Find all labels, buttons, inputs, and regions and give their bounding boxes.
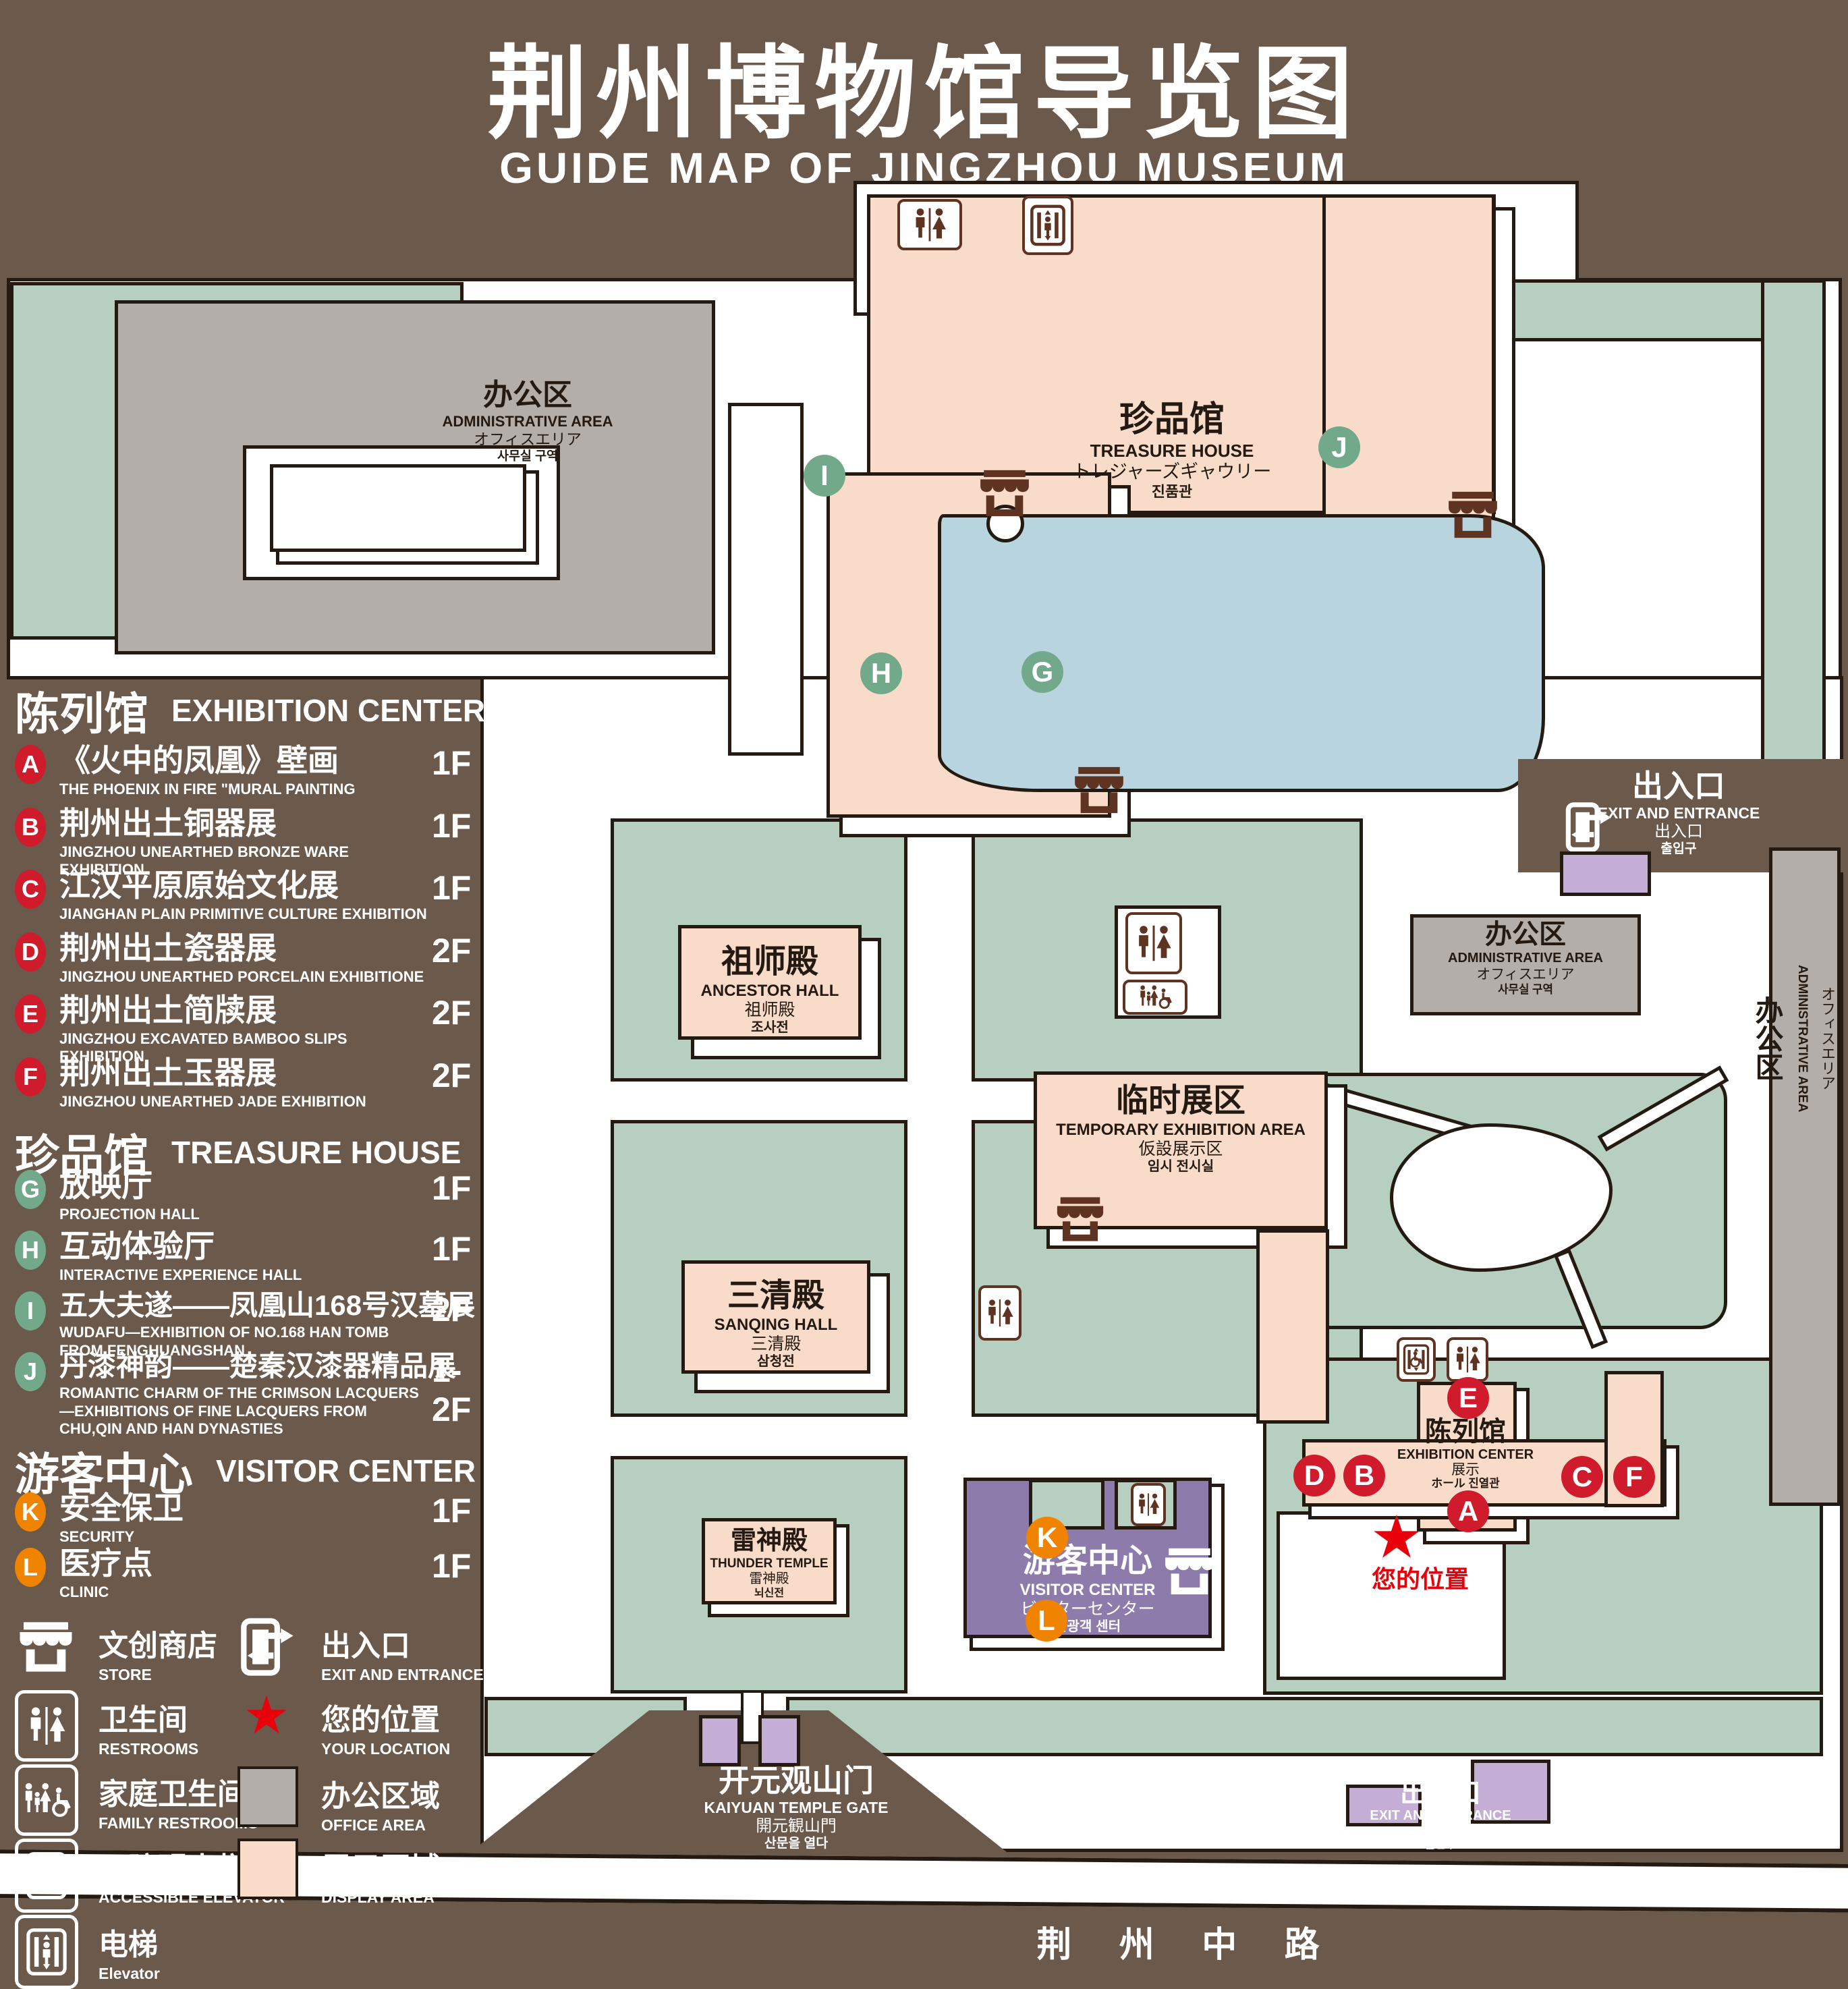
legend-item-floor: 1-2F <box>432 1351 487 1429</box>
legend-symbol-elevator: 电梯 Elevator <box>15 1915 160 1983</box>
legend-symbol-en: DISPLAY AREA <box>321 1888 440 1907</box>
label-en: TEMPORARY EXHIBITION AREA <box>1056 1121 1306 1140</box>
label-exit-south: 出入口 EXIT AND ENTRANCE 出入口 출입구 <box>1370 1778 1511 1851</box>
legend-item-zh: 互动体验厅 <box>59 1229 427 1264</box>
legend-item-zh: 丹漆神韵——楚秦汉漆器精品展 <box>59 1351 427 1382</box>
legend-item-zh: 医疗点 <box>59 1546 427 1581</box>
building-admin-east <box>1769 847 1841 1506</box>
legend-item-en: THE PHOENIX IN FIRE "MURAL PAINTING <box>59 781 427 798</box>
marker-badge-E: E <box>15 994 46 1034</box>
legend-symbol-restrooms: 卫生间 RESTROOMS <box>15 1690 198 1758</box>
legend-item-floor: 1F <box>432 744 471 783</box>
label-jp: 祖师殿 <box>701 1001 839 1020</box>
label-exhibition-center: 陈列馆 EXHIBITION CENTER 展示 ホール 진열관 <box>1397 1417 1534 1490</box>
legend-section-zh: 陈列馆 <box>15 689 148 739</box>
label-kaiyuan-gate: 开元观山门 KAIYUAN TEMPLE GATE 開元観山門 산문을 열다 <box>704 1762 888 1851</box>
legend-item-zh: 荆州出土玉器展 <box>59 1056 427 1090</box>
legend-symbol-en: EXIT AND ENTRANCE <box>321 1666 484 1684</box>
label-zh: 雷神殿 <box>710 1526 828 1557</box>
marker-badge-K: K <box>15 1492 46 1532</box>
marker-badge-L: L <box>15 1548 46 1587</box>
legend-item-J: J 丹漆神韵——楚秦汉漆器精品展 ROMANTIC CHARM OF THE C… <box>15 1351 487 1438</box>
label-zh: 办公区 <box>1747 996 1788 1081</box>
office-swatch <box>237 1766 298 1827</box>
marker-badge-C: C <box>15 870 46 909</box>
label-en: TREASURE HOUSE <box>1073 441 1272 461</box>
label-zh: 陈列馆 <box>1397 1417 1534 1447</box>
legend-symbol-en: FAMILY RESTROOMS <box>99 1814 258 1832</box>
map-marker-K: K <box>1026 1517 1068 1559</box>
legend-item-A: A 《火中的凤凰》壁画 THE PHOENIX IN FIRE "MURAL P… <box>15 744 487 798</box>
legend-symbol-zh: 出入口 <box>321 1621 484 1664</box>
legend-section-exhibition-center: 陈列馆EXHIBITION CENTER <box>15 678 485 743</box>
legend-item-floor: 1F <box>432 868 471 907</box>
label-kr: 뇌신전 <box>710 1588 828 1600</box>
page-title: 荆州博物馆导览图 <box>0 12 1848 159</box>
legend-item-C: C 江汉平原原始文化展 JIANGHAN PLAIN PRIMITIVE CUL… <box>15 868 487 923</box>
label-kr: 삼청전 <box>715 1354 838 1370</box>
legend-symbol-office-area: 办公区域 OFFICE AREA <box>237 1766 440 1834</box>
legend-item-floor: 1F <box>432 1491 471 1530</box>
label-jp: 出入口 <box>1370 1823 1511 1839</box>
exit-icon <box>237 1616 300 1678</box>
legend-item-zh: 《火中的凤凰》壁画 <box>59 744 427 778</box>
store-icon <box>1054 1193 1107 1245</box>
legend-item-floor: 1F <box>432 1229 471 1268</box>
label-zh: 办公区 <box>443 378 613 413</box>
legend-item-en: PROJECTION HALL <box>59 1206 427 1223</box>
legend-item-en: INTERACTIVE EXPERIENCE HALL <box>59 1266 427 1284</box>
label-jp: 三清殿 <box>715 1335 838 1354</box>
legend-item-en: SECURITY <box>59 1528 427 1546</box>
gate-post <box>758 1715 800 1766</box>
label-zh: 珍品馆 <box>1073 399 1272 441</box>
marker-badge-F: F <box>15 1057 46 1096</box>
label-en: EXIT AND ENTRANCE <box>1370 1808 1511 1823</box>
legend-item-D: D 荆州出土瓷器展 JINGZHOU UNEARTHED PORCELAIN E… <box>15 931 487 986</box>
label-temporary-exhibition: 临时展区 TEMPORARY EXHIBITION AREA 仮設展示区 임시 … <box>1056 1082 1306 1175</box>
legend-item-en: JINGZHOU UNEARTHED JADE EXHIBITION <box>59 1093 427 1111</box>
store-icon <box>1162 1544 1217 1599</box>
label-en: ADMINISTRATIVE AREA <box>1448 951 1603 967</box>
legend-item-floor: 1F <box>432 806 471 845</box>
legend-section-en: EXHIBITION CENTER <box>171 693 485 728</box>
map-marker-E: E <box>1447 1377 1489 1419</box>
label-en: THUNDER TEMPLE <box>710 1557 828 1571</box>
label-kr: 사무실 구역 <box>443 449 613 464</box>
legend-symbol-zh: 电梯 <box>99 1920 160 1963</box>
label-kr: 산문을 열다 <box>704 1837 888 1852</box>
map-marker-I: I <box>804 455 845 497</box>
legend-item-G: G 放映厅 PROJECTION HALL 1F <box>15 1169 487 1223</box>
legend-symbol-family-restrooms: 家庭卫生间 FAMILY RESTROOMS <box>15 1764 258 1832</box>
legend-item-zh: 荆州出土铜器展 <box>59 806 427 841</box>
legend-item-L: L 医疗点 CLINIC 1F <box>15 1546 487 1601</box>
legend-symbol-zh: 卫生间 <box>99 1696 198 1739</box>
marker-badge-G: G <box>15 1170 46 1209</box>
legend-section-en: VISITOR CENTER <box>216 1453 476 1488</box>
marker-badge-B: B <box>15 808 46 847</box>
legend-item-en: CLINIC <box>59 1584 427 1601</box>
label-en: ADMINISTRATIVE AREA <box>443 413 613 430</box>
marker-badge-A: A <box>15 745 46 784</box>
display-swatch <box>237 1839 298 1899</box>
legend-symbol-zh: 家庭卫生间 <box>99 1770 258 1813</box>
label-en: ANCESTOR HALL <box>701 982 839 1001</box>
map-marker-L: L <box>1026 1600 1067 1642</box>
treasure-pond <box>938 514 1545 792</box>
gate-post <box>699 1715 741 1766</box>
legend-item-zh: 荆州出土简牍展 <box>59 993 427 1028</box>
label-zh: 出入口 <box>1370 1778 1511 1808</box>
marker-badge-I: I <box>15 1291 46 1330</box>
label-jp: オフィスエリア <box>1816 986 1838 1090</box>
legend: 陈列馆EXHIBITION CENTER A 《火中的凤凰》壁画 THE PHO… <box>15 678 487 1946</box>
lawn-east-strip <box>1761 279 1826 810</box>
restroom-icon <box>1131 1483 1166 1526</box>
map-marker-H: H <box>860 652 902 694</box>
building-temporary-exhibition-arm <box>1256 1229 1329 1424</box>
label-en: ADMINISTRATIVE AREA <box>1795 965 1810 1113</box>
map-marker-J: J <box>1318 426 1360 468</box>
label-jp: 開元観山門 <box>704 1817 888 1836</box>
label-zh: 办公区 <box>1448 919 1603 951</box>
accessible-elevator-icon <box>1397 1337 1436 1382</box>
label-jp: オフィスエリア <box>443 430 613 449</box>
legend-symbol-zh: 文创商店 <box>99 1621 217 1664</box>
label-jp: 仮設展示区 <box>1056 1140 1306 1159</box>
map-marker-D: D <box>1293 1455 1335 1496</box>
marker-badge-J: J <box>15 1352 46 1391</box>
label-en: VISITOR CENTER <box>1020 1581 1156 1600</box>
store-icon <box>977 466 1032 521</box>
label-zh: 祖师殿 <box>701 943 839 982</box>
admin-northwest-inner-building <box>270 464 526 552</box>
label-zh: 开元观山门 <box>704 1762 888 1799</box>
label-ancestor-hall: 祖师殿 ANCESTOR HALL 祖师殿 조사전 <box>701 943 839 1036</box>
legend-symbol-exit: 出入口 EXIT AND ENTRANCE <box>237 1616 484 1684</box>
legend-item-en: JIANGHAN PLAIN PRIMITIVE CULTURE EXHIBIT… <box>59 905 427 923</box>
legend-symbol-en: Elevator <box>99 1965 160 1983</box>
label-jp: オフィスエリア <box>1448 967 1603 984</box>
restroom-icon <box>1447 1337 1488 1382</box>
label-jp: トレジャーズギャウリー <box>1073 461 1272 483</box>
label-kr: 출입구 <box>1370 1839 1511 1851</box>
white-tower-building <box>728 403 804 756</box>
restroom-icon <box>1125 912 1182 974</box>
label-en: SANQING HALL <box>715 1316 838 1335</box>
legend-item-floor: 1F <box>432 1546 471 1586</box>
store-icon <box>1071 762 1127 818</box>
label-admin-middle: 办公区 ADMINISTRATIVE AREA オフィスエリア 사무실 구역 <box>1448 919 1603 997</box>
your-location-label: 您的位置 <box>1372 1560 1469 1595</box>
elevator-icon <box>1022 196 1073 255</box>
store-icon <box>15 1616 77 1678</box>
accessible-elevator-icon <box>15 1839 78 1913</box>
store-icon <box>1445 487 1501 542</box>
legend-item-K: K 安全保卫 SECURITY 1F <box>15 1491 487 1546</box>
map-marker-F: F <box>1613 1456 1655 1498</box>
legend-symbol-store: 文创商店 STORE <box>15 1616 217 1684</box>
label-admin-east: 办公区 ADMINISTRATIVE AREA オフィスエリア 사무실 구역 <box>1597 965 1848 1113</box>
legend-symbol-en: RESTROOMS <box>99 1740 198 1758</box>
legend-symbol-zh: 您的位置 <box>321 1696 450 1739</box>
legend-item-floor: 2F <box>432 1056 471 1095</box>
legend-item-floor: 2F <box>432 993 471 1032</box>
label-en: EXIT AND ENTRANCE <box>1598 804 1760 822</box>
label-exit-northeast: 出入口 EXIT AND ENTRANCE 出入口 출입구 <box>1598 768 1760 857</box>
label-kr: 사무실 구역 <box>1845 1005 1848 1072</box>
location-star-icon: ★ <box>243 1685 290 1746</box>
restroom-icon <box>897 199 962 250</box>
label-kr: 사무실 구역 <box>1448 983 1603 997</box>
legend-item-zh: 荆州出土瓷器展 <box>59 931 427 965</box>
legend-item-floor: 2F <box>432 931 471 970</box>
marker-badge-H: H <box>15 1231 46 1270</box>
road-label: 荆 州 中 路 <box>1036 1916 1338 1967</box>
label-jp: 出入口 <box>1598 822 1760 841</box>
legend-item-floor: 1F <box>432 1169 471 1208</box>
family-restroom-icon <box>15 1764 78 1836</box>
elevator-icon <box>15 1915 78 1989</box>
label-sanqing-hall: 三清殿 SANQING HALL 三清殿 삼청전 <box>715 1277 838 1370</box>
legend-item-floor: 2F <box>432 1290 471 1329</box>
legend-item-zh: 五大夫遂——凤凰山168号汉墓展 <box>59 1290 427 1321</box>
legend-item-F: F 荆州出土玉器展 JINGZHOU UNEARTHED JADE EXHIBI… <box>15 1056 487 1111</box>
legend-item-I: I 五大夫遂——凤凰山168号汉墓展 WUDAFU—EXHIBITION OF … <box>15 1290 487 1360</box>
label-en: KAIYUAN TEMPLE GATE <box>704 1799 888 1817</box>
legend-symbol-display-area: 展示区域 DISPLAY AREA <box>237 1839 440 1907</box>
legend-symbol-your-location: ★ 您的位置 YOUR LOCATION <box>237 1690 450 1758</box>
label-kr: ホール 진열관 <box>1397 1478 1534 1490</box>
label-kr: 진품관 <box>1073 483 1272 501</box>
label-kr: 조사전 <box>701 1020 839 1036</box>
label-zh: 出入口 <box>1598 768 1760 804</box>
label-en: EXHIBITION CENTER <box>1397 1447 1534 1462</box>
label-jp: 雷神殿 <box>710 1571 828 1587</box>
legend-symbol-en: OFFICE AREA <box>321 1816 440 1834</box>
restroom-icon <box>978 1285 1021 1341</box>
label-zh: 三清殿 <box>715 1277 838 1316</box>
legend-symbol-en: YOUR LOCATION <box>321 1740 450 1758</box>
legend-item-H: H 互动体验厅 INTERACTIVE EXPERIENCE HALL 1F <box>15 1229 487 1284</box>
restroom-icon <box>15 1690 78 1762</box>
map-marker-A: A <box>1447 1490 1489 1532</box>
legend-symbol-zh: 办公区域 <box>321 1772 440 1815</box>
map-marker-C: C <box>1561 1456 1603 1498</box>
label-jp: 展示 <box>1397 1462 1534 1478</box>
legend-item-zh: 江汉平原原始文化展 <box>59 868 427 903</box>
label-admin-northwest: 办公区 ADMINISTRATIVE AREA オフィスエリア 사무실 구역 <box>443 378 613 464</box>
label-zh: 临时展区 <box>1056 1082 1306 1121</box>
legend-item-zh: 安全保卫 <box>59 1491 427 1525</box>
legend-symbol-en: STORE <box>99 1666 217 1684</box>
legend-symbol-zh: 展示区域 <box>321 1844 440 1887</box>
label-kr: 임시 전시실 <box>1056 1159 1306 1175</box>
legend-item-en: JINGZHOU UNEARTHED PORCELAIN EXHIBITIONE <box>59 968 427 986</box>
marker-badge-D: D <box>15 932 46 972</box>
building-small-lavender <box>1560 851 1651 896</box>
legend-item-zh: 放映厅 <box>59 1169 427 1203</box>
label-thunder-temple: 雷神殿 THUNDER TEMPLE 雷神殿 뇌신전 <box>710 1526 828 1600</box>
legend-item-en: ROMANTIC CHARM OF THE CRIMSON LACQUERS—E… <box>59 1384 424 1438</box>
map-marker-G: G <box>1021 651 1063 693</box>
label-treasure-house: 珍品馆 TREASURE HOUSE トレジャーズギャウリー 진품관 <box>1073 399 1272 501</box>
map-marker-B: B <box>1343 1455 1385 1496</box>
legend-section-en: TREASURE HOUSE <box>171 1135 461 1170</box>
lawn-south-right <box>786 1697 1823 1756</box>
family-restroom-icon <box>1123 980 1187 1015</box>
